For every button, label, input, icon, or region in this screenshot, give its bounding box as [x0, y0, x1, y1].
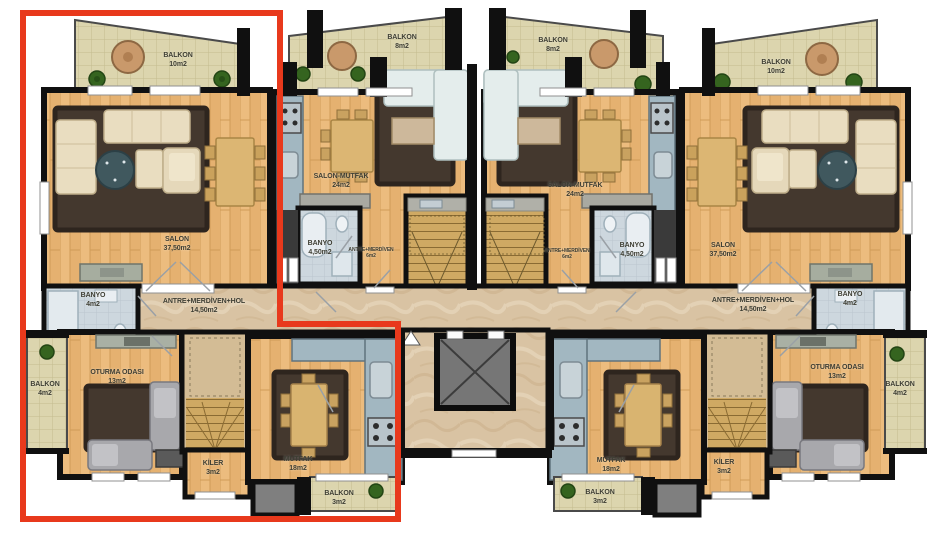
room-label-left-balkon-top: BALKON 10m2 [163, 51, 192, 69]
coffee-table [392, 118, 434, 144]
room-label-mid-right-balkon: BALKON 8m2 [538, 36, 567, 54]
plant [561, 484, 575, 498]
room-label-left-kiler: KİLER 3m2 [203, 459, 224, 477]
plant [890, 347, 904, 361]
coffee-table [96, 151, 134, 189]
sink [370, 362, 392, 398]
stove [554, 418, 584, 446]
coffee-table [518, 118, 560, 144]
room-label-right-oturma: OTURMA ODASI 13m2 [810, 363, 863, 381]
room-label-mid-right-banyo: BANYO 4,50m2 [620, 241, 645, 259]
utility-slab [253, 482, 297, 515]
room-label-left-mutfak: MUTFAK 18m2 [284, 455, 313, 473]
room-label-right-mutfak: MUTFAK 18m2 [597, 456, 626, 474]
room-label-right-hall: ANTRE+MERDİVEN+HOL 14,50m2 [712, 296, 794, 314]
room-label-mid-left-antre: ANTRE+MERDİVEN 6m2 [348, 247, 393, 259]
dining-table [331, 120, 373, 172]
coffee-table [818, 151, 856, 189]
plant [507, 51, 519, 63]
dining-table [291, 384, 327, 446]
room-label-left-banyo: BANYO 4m2 [81, 291, 106, 309]
ottoman [136, 150, 163, 188]
plant [40, 345, 54, 359]
right-kiler-floor [702, 450, 767, 497]
room-label-right-banyo: BANYO 4m2 [838, 290, 863, 308]
sink [560, 362, 582, 398]
stove [651, 103, 673, 133]
room-label-left-balkon-side: BALKON 4m2 [30, 380, 59, 398]
sofa [762, 110, 848, 143]
stove [368, 418, 398, 446]
dining-table [625, 384, 661, 446]
room-label-mid-left-banyo: BANYO 4,50m2 [308, 239, 333, 257]
room-label-mid-left-salon-mutfak: SALON-MUTFAK 24m2 [314, 172, 369, 190]
room-label-mid-left-balkon: BALKON 8m2 [387, 33, 416, 51]
balcony-table [590, 40, 618, 68]
plant [296, 67, 310, 81]
room-label-right-balkon-bottom: BALKON 3m2 [585, 488, 614, 506]
dining-table [698, 138, 736, 206]
sofa [104, 110, 190, 143]
left-stairs [182, 330, 248, 452]
mid-right-stairs [484, 196, 546, 292]
floor-plan-drawing [0, 0, 951, 533]
dining-table [579, 120, 621, 172]
sofa [484, 70, 518, 160]
room-label-right-balkon-top: BALKON 10m2 [761, 58, 790, 76]
room-label-left-balkon-bottom: BALKON 3m2 [324, 489, 353, 507]
sofa [56, 120, 96, 194]
mid-left-stairs [406, 196, 468, 292]
ottoman [789, 150, 816, 188]
room-label-right-kiler: KİLER 3m2 [714, 458, 735, 476]
sofa [434, 70, 468, 160]
room-label-left-oturma: OTURMA ODASI 13m2 [90, 368, 143, 386]
room-label-right-salon: SALON 37,50m2 [710, 241, 737, 259]
toilet [336, 216, 348, 232]
room-label-mid-right-antre: ANTRE+MERDİVEN 6m2 [544, 248, 589, 260]
plant [351, 67, 365, 81]
room-label-mid-right-salon-mutfak: SALON-MUTFAK 24m2 [548, 181, 603, 199]
left-balcony-bottom [310, 477, 398, 511]
utility-slab [655, 482, 699, 515]
balcony-table [328, 42, 356, 70]
sink [654, 152, 672, 178]
dining-table [216, 138, 254, 206]
toilet [604, 216, 616, 232]
room-label-right-balkon-side: BALKON 4m2 [885, 380, 914, 398]
plant [369, 484, 383, 498]
sink [600, 252, 620, 276]
sofa [856, 120, 896, 194]
floor-plan: BALKON 10m2 SALON 37,50m2 BANYO 4m2 ANTR… [0, 0, 951, 533]
kitchen-counter [550, 339, 587, 480]
room-label-left-salon: SALON 37,50m2 [164, 235, 191, 253]
right-stairs [704, 330, 770, 452]
room-label-left-hall: ANTRE+MERDİVEN+HOL 14,50m2 [163, 297, 245, 315]
